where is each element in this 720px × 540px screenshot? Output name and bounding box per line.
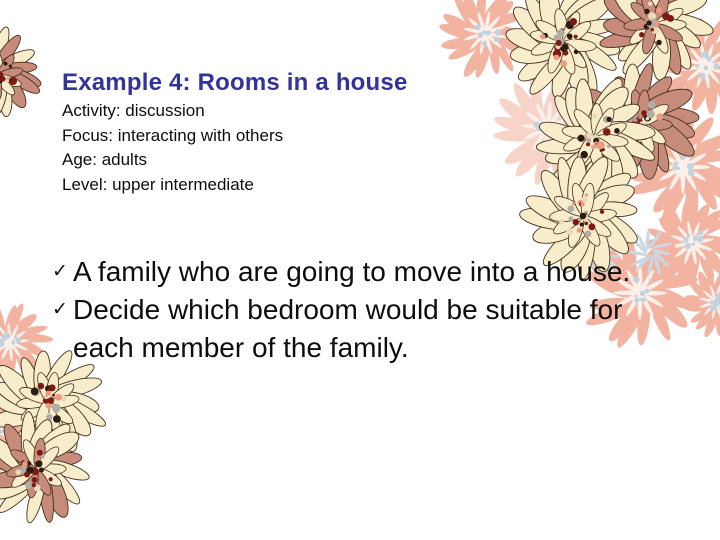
slide-title: Example 4: Rooms in a house (62, 69, 408, 97)
bullet-list: ✓ A family who are going to move into a … (52, 253, 652, 367)
detail-activity: Activity: discussion (62, 99, 283, 124)
detail-focus: Focus: interacting with others (62, 124, 283, 149)
detail-age: Age: adults (62, 148, 283, 173)
detail-level: Level: upper intermediate (62, 173, 283, 198)
bullet-line: A family who are going to move into a ho… (73, 253, 652, 291)
bullet-item: ✓ A family who are going to move into a … (52, 253, 652, 291)
presentation-slide: Example 4: Rooms in a house Activity: di… (0, 0, 720, 540)
bullet-line: Decide which bedroom would be suitable f… (73, 291, 652, 329)
slide-details: Activity: discussion Focus: interacting … (62, 99, 283, 197)
bullet-line: each member of the family. (73, 329, 652, 367)
bullet-item: ✓ Decide which bedroom would be suitable… (52, 291, 652, 367)
checkmark-icon: ✓ (52, 253, 73, 291)
checkmark-icon: ✓ (52, 291, 73, 329)
bullet-text: Decide which bedroom would be suitable f… (73, 291, 652, 367)
bullet-text: A family who are going to move into a ho… (73, 253, 652, 291)
